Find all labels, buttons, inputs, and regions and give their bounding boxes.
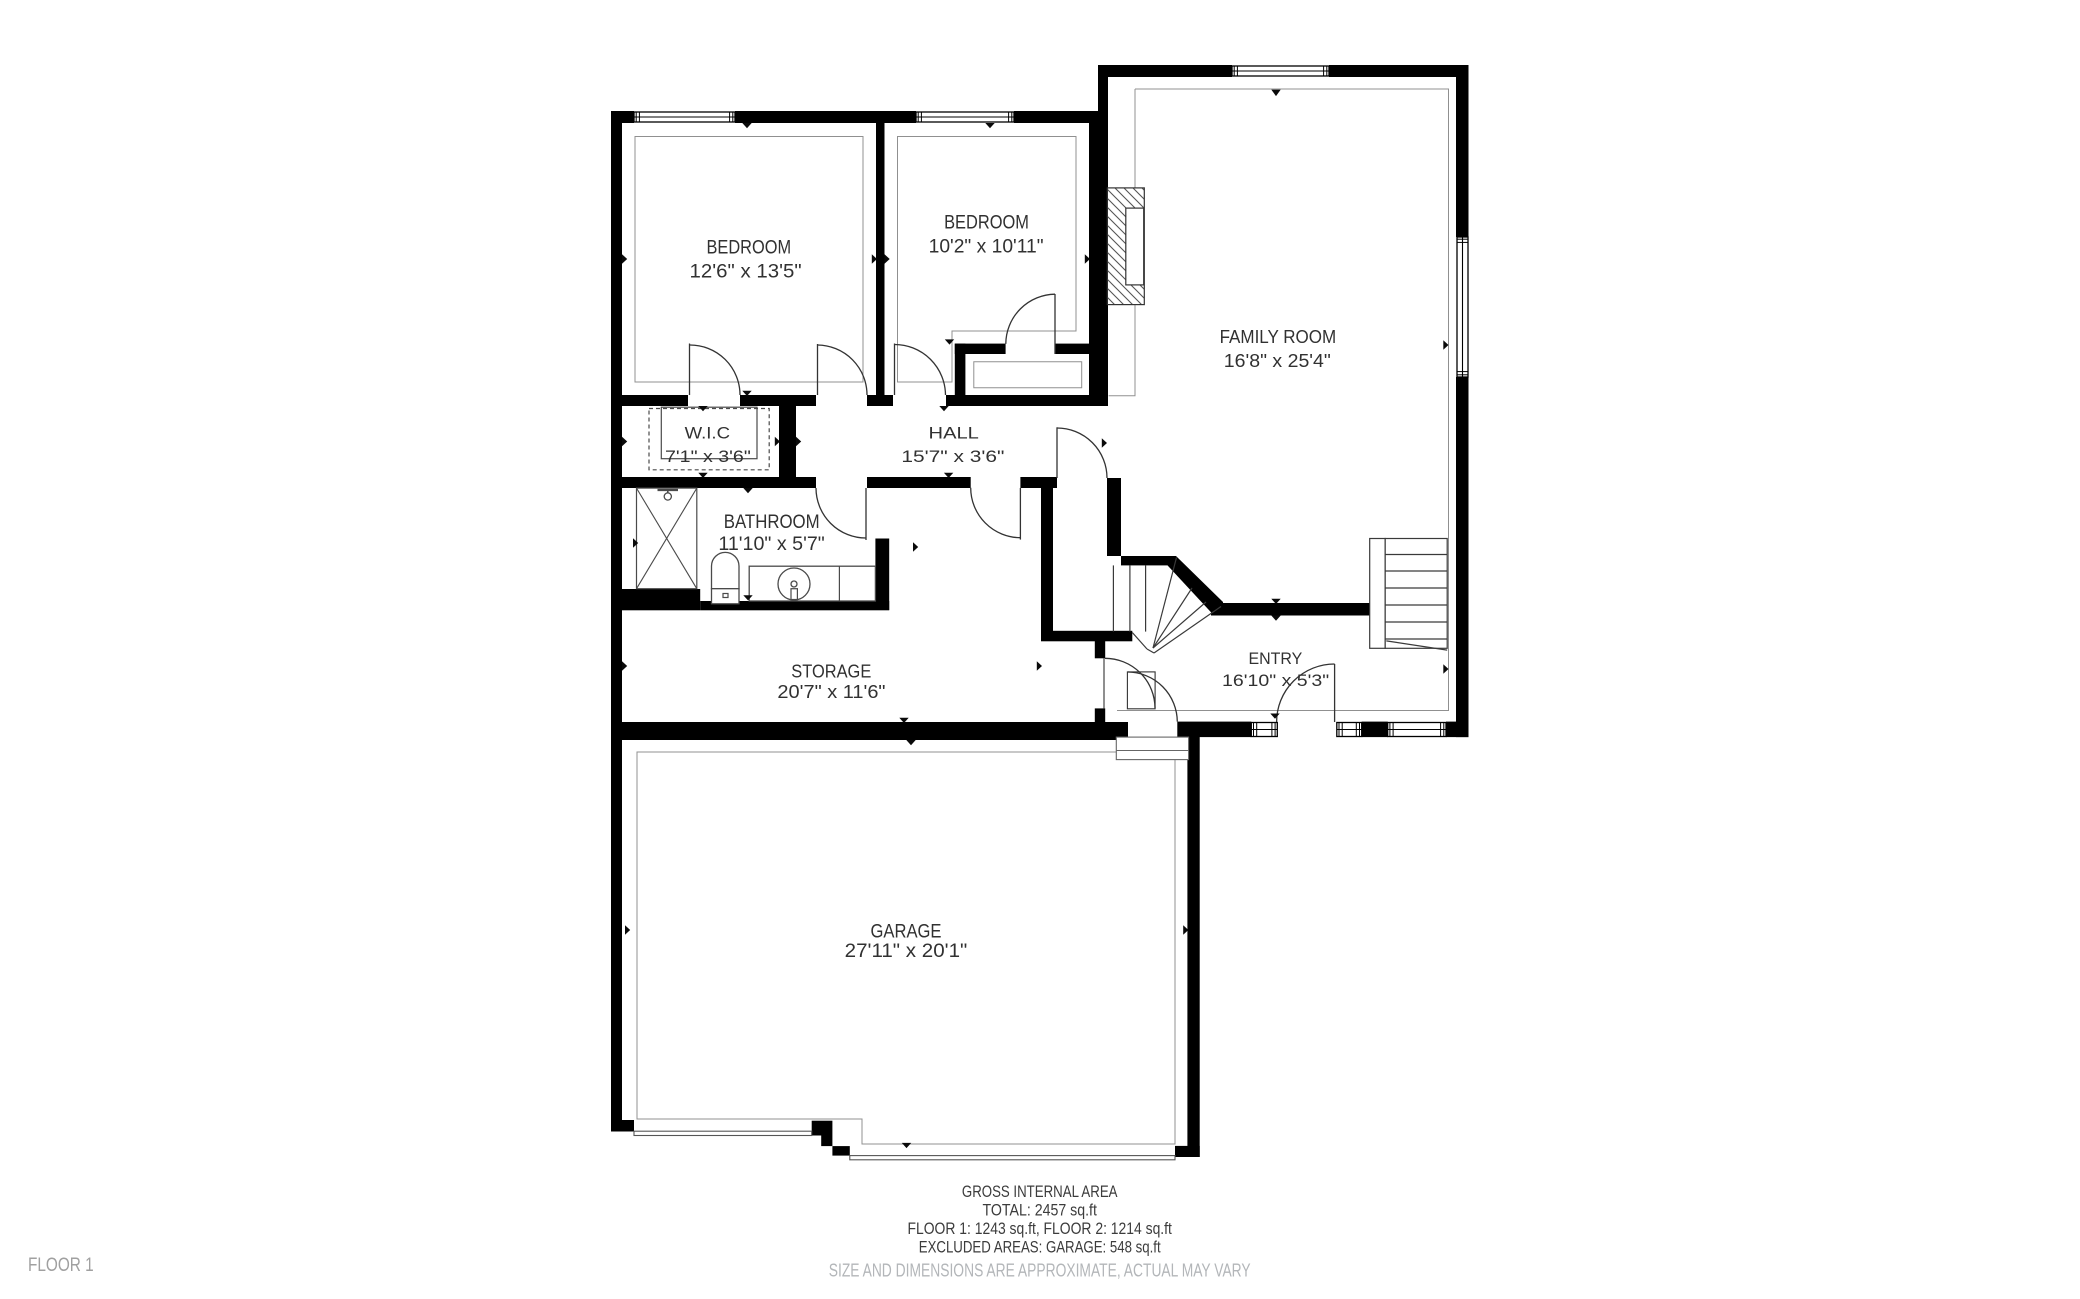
svg-text:BEDROOM: BEDROOM	[707, 237, 792, 259]
svg-text:EXCLUDED AREAS: GARAGE: 548 sq: EXCLUDED AREAS: GARAGE: 548 sq.ft	[919, 1238, 1161, 1257]
svg-text:15'7" x 3'6": 15'7" x 3'6"	[901, 447, 1004, 466]
svg-text:W.I.C: W.I.C	[685, 424, 730, 443]
svg-text:12'6" x 13'5": 12'6" x 13'5"	[690, 260, 802, 282]
svg-text:GROSS INTERNAL AREA: GROSS INTERNAL AREA	[962, 1182, 1118, 1201]
svg-text:STORAGE: STORAGE	[791, 661, 871, 681]
svg-text:16'10" x 5'3": 16'10" x 5'3"	[1222, 671, 1329, 690]
svg-text:27'11" x 20'1": 27'11" x 20'1"	[845, 940, 968, 962]
svg-text:20'7" x 11'6": 20'7" x 11'6"	[777, 682, 885, 702]
svg-text:FAMILY ROOM: FAMILY ROOM	[1220, 327, 1337, 347]
svg-text:BEDROOM: BEDROOM	[944, 212, 1029, 234]
svg-text:11'10" x 5'7": 11'10" x 5'7"	[718, 533, 824, 555]
svg-text:10'2" x 10'11": 10'2" x 10'11"	[929, 235, 1044, 257]
svg-text:16'8" x 25'4": 16'8" x 25'4"	[1224, 351, 1331, 371]
svg-text:SIZE AND DIMENSIONS ARE APPROX: SIZE AND DIMENSIONS ARE APPROXIMATE, ACT…	[829, 1260, 1251, 1280]
svg-text:ENTRY: ENTRY	[1249, 649, 1303, 668]
svg-text:7'1" x 3'6": 7'1" x 3'6"	[665, 447, 751, 466]
svg-text:FLOOR 1: FLOOR 1	[28, 1254, 94, 1276]
svg-text:HALL: HALL	[929, 424, 979, 443]
svg-text:FLOOR 1: 1243 sq.ft, FLOOR 2:: FLOOR 1: 1243 sq.ft, FLOOR 2: 1214 sq.ft	[908, 1219, 1173, 1238]
svg-text:BATHROOM: BATHROOM	[724, 511, 820, 533]
svg-text:TOTAL: 2457 sq.ft: TOTAL: 2457 sq.ft	[983, 1201, 1098, 1220]
